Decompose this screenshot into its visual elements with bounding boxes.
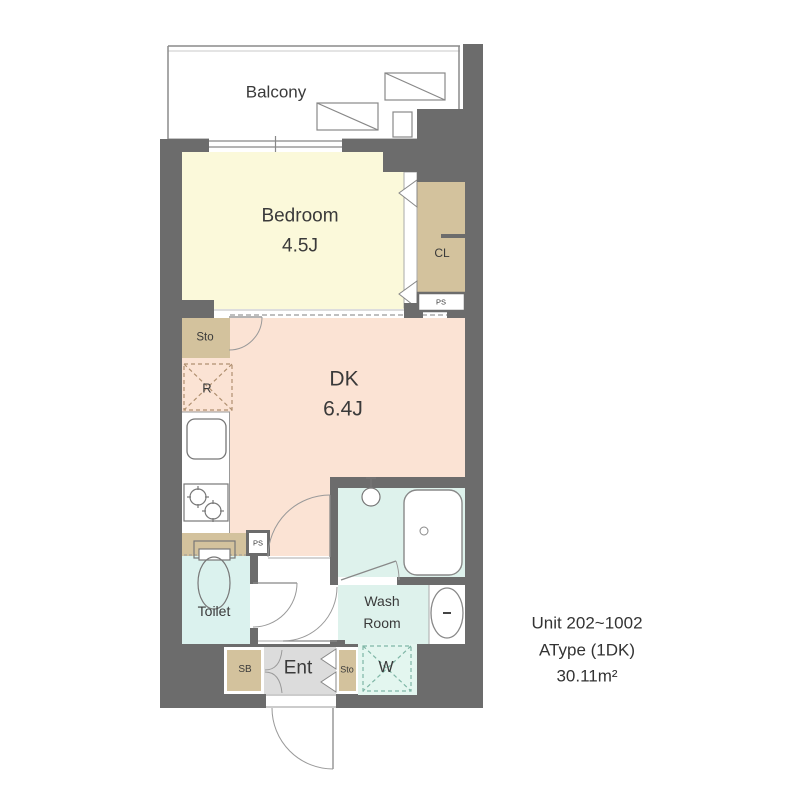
washroom-label-line2: Room: [363, 616, 400, 630]
wall-segment: [383, 139, 417, 172]
balcony-label: Balcony: [246, 84, 306, 101]
refrigerator-label: R: [202, 382, 211, 395]
floorplan-page: Balcony Bedroom 4.5J DK 6.4J CL PS Sto R…: [0, 0, 799, 800]
entry-threshold: [266, 694, 336, 708]
floorplan-drawing: [0, 0, 799, 800]
unit-range-text: Unit 202~1002: [531, 615, 642, 632]
bedroom-size-label: 4.5J: [282, 237, 318, 256]
balcony-small-fixture: [393, 112, 412, 137]
wall-segment: [250, 628, 258, 645]
storage-lower-label: Sto: [340, 666, 354, 675]
wall-segment: [342, 139, 387, 152]
dk-size-label: 6.4J: [323, 399, 363, 420]
wall-segment: [160, 139, 182, 644]
ac-outdoor-unit-1: [385, 73, 445, 100]
unit-area-text: 30.11m²: [556, 668, 617, 685]
wall-segment: [465, 182, 483, 644]
stove: [184, 484, 228, 522]
pipe-space-lower-label: PS: [253, 539, 263, 547]
bathtub: [404, 490, 462, 575]
washer-space-label: W: [378, 660, 393, 676]
shower-head: [362, 488, 380, 506]
unit-type-text: AType (1DK): [539, 642, 635, 659]
wall-segment: [250, 556, 258, 584]
dk-label: DK: [329, 369, 358, 390]
wall-segment: [397, 577, 465, 585]
closet-label: CL: [434, 247, 449, 259]
toilet-label: Toilet: [198, 604, 231, 618]
washroom-label-line1: Wash: [364, 594, 399, 608]
wall-segment: [463, 44, 483, 109]
wall-segment: [330, 477, 465, 488]
wall-segment: [330, 488, 338, 585]
storage-upper-label: Sto: [196, 332, 213, 344]
entrance-label: Ent: [284, 659, 313, 678]
kitchen-sink: [187, 419, 226, 459]
wall-segment: [160, 300, 214, 318]
toilet-tank-lid: [199, 549, 230, 560]
shoe-box-label: SB: [238, 665, 251, 675]
bedroom-floor: [182, 152, 404, 309]
bedroom-label: Bedroom: [261, 207, 338, 226]
toilet-floor: [182, 556, 250, 644]
ac-outdoor-unit-2: [317, 103, 378, 130]
hallway-floor: [256, 556, 330, 641]
closet-divider: [441, 234, 466, 238]
wall-segment: [417, 109, 483, 182]
pipe-space-upper-label: PS: [436, 298, 446, 306]
entry-door-arc: [272, 708, 333, 769]
